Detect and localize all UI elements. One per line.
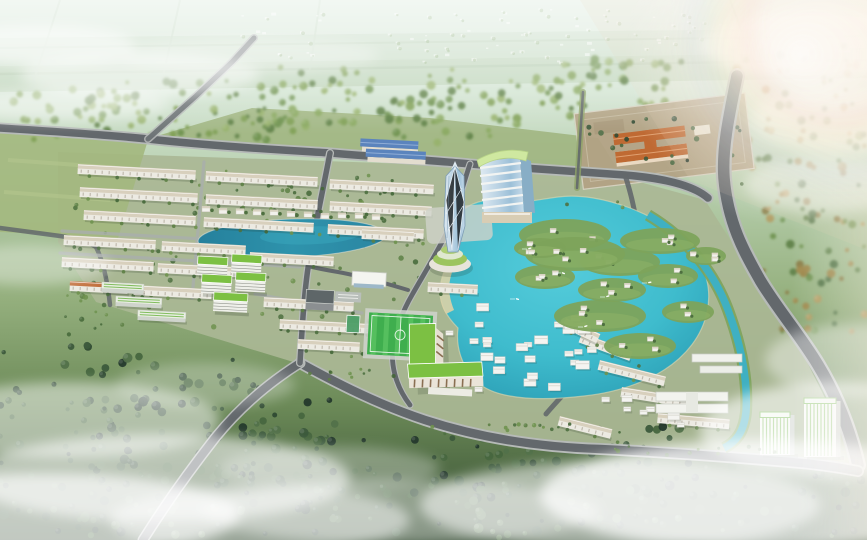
banded-high-rise [477, 150, 535, 223]
render-canvas [0, 0, 867, 540]
aerial-masterplan-render [0, 0, 867, 540]
blue-roof-mansion [359, 138, 426, 164]
dark-office-block [305, 289, 334, 310]
crystal-tower [444, 161, 465, 252]
